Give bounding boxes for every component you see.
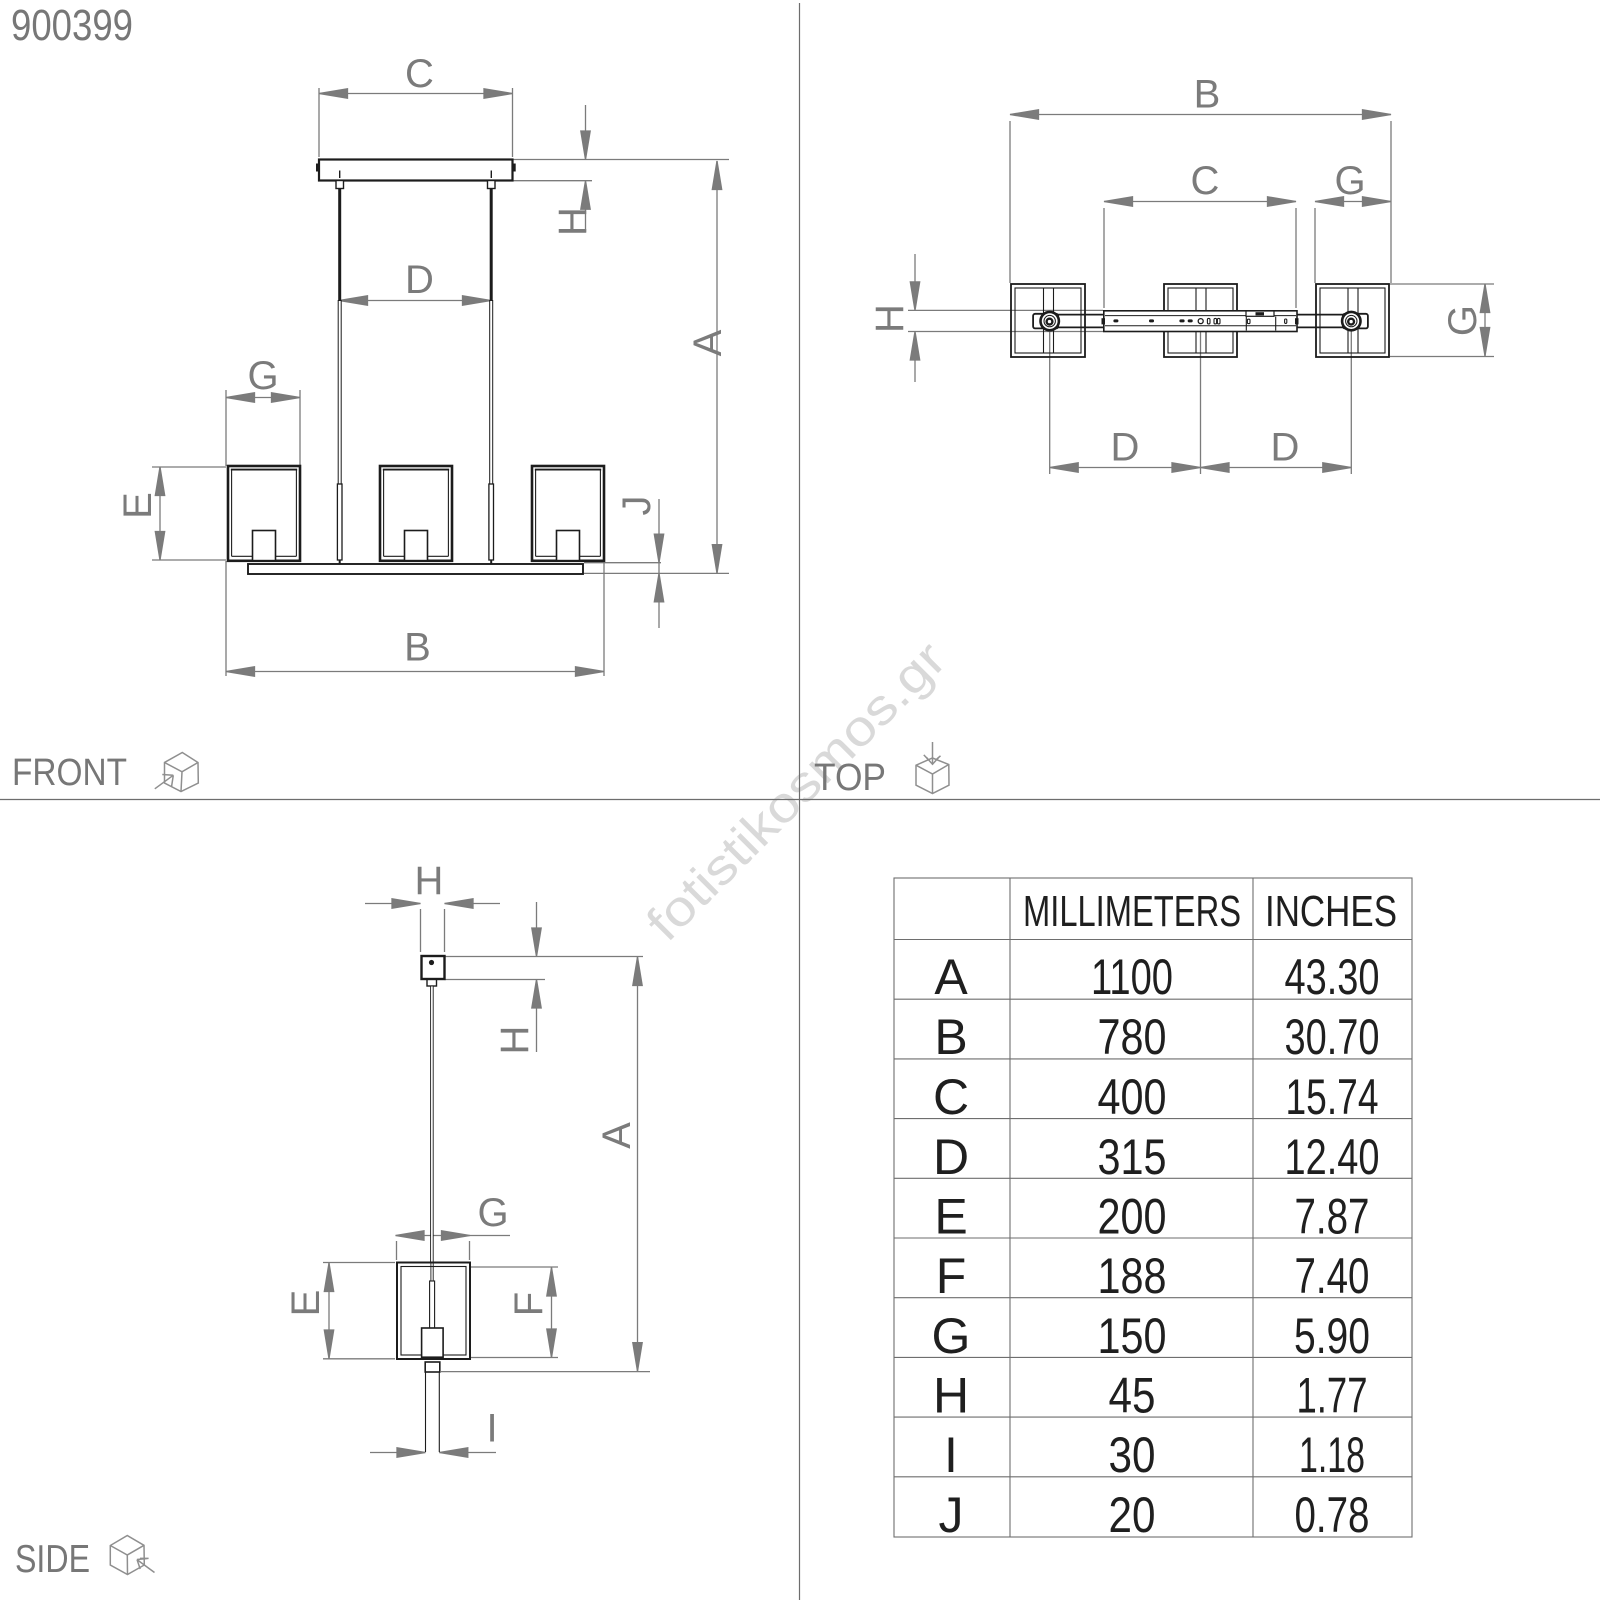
svg-text:SIDE: SIDE	[15, 1538, 90, 1581]
svg-text:H: H	[868, 304, 912, 333]
svg-text:H: H	[551, 207, 595, 236]
svg-text:315: 315	[1098, 1129, 1167, 1185]
svg-text:G: G	[247, 354, 278, 398]
svg-text:D: D	[405, 258, 434, 302]
svg-text:G: G	[1441, 305, 1485, 336]
svg-text:150: 150	[1098, 1308, 1167, 1364]
svg-text:A: A	[934, 949, 968, 1005]
svg-text:H: H	[933, 1368, 969, 1424]
svg-text:188: 188	[1098, 1248, 1167, 1304]
svg-text:D: D	[1271, 426, 1300, 470]
svg-text:5.90: 5.90	[1294, 1308, 1370, 1364]
svg-text:C: C	[1191, 159, 1220, 203]
svg-text:B: B	[404, 626, 431, 670]
svg-text:1.77: 1.77	[1297, 1368, 1368, 1424]
svg-text:400: 400	[1098, 1069, 1167, 1125]
svg-text:A: A	[686, 329, 730, 356]
svg-text:G: G	[1334, 159, 1365, 203]
svg-text:7.87: 7.87	[1295, 1189, 1370, 1245]
svg-text:780: 780	[1098, 1009, 1167, 1065]
svg-text:J: J	[615, 496, 659, 516]
svg-text:15.74: 15.74	[1286, 1069, 1379, 1125]
svg-text:FRONT: FRONT	[12, 752, 127, 794]
svg-text:G: G	[477, 1191, 508, 1235]
svg-text:E: E	[284, 1290, 328, 1317]
svg-text:43.30: 43.30	[1285, 949, 1380, 1005]
svg-text:TOP: TOP	[814, 757, 886, 799]
svg-text:7.40: 7.40	[1295, 1248, 1370, 1304]
svg-text:I: I	[486, 1407, 497, 1451]
svg-text:H: H	[415, 859, 444, 903]
svg-text:E: E	[934, 1189, 967, 1245]
svg-text:INCHES: INCHES	[1265, 887, 1397, 936]
svg-text:B: B	[934, 1009, 967, 1065]
svg-text:D: D	[933, 1129, 969, 1185]
svg-text:H: H	[493, 1026, 537, 1055]
svg-text:45: 45	[1109, 1368, 1156, 1424]
svg-text:C: C	[405, 52, 434, 96]
svg-text:900399: 900399	[11, 2, 133, 50]
svg-text:C: C	[933, 1069, 969, 1125]
svg-text:F: F	[936, 1248, 967, 1304]
svg-text:I: I	[944, 1427, 958, 1483]
svg-text:E: E	[116, 492, 160, 519]
svg-text:200: 200	[1098, 1189, 1167, 1245]
svg-text:G: G	[932, 1308, 971, 1364]
svg-text:20: 20	[1109, 1487, 1156, 1543]
svg-text:0.78: 0.78	[1295, 1487, 1370, 1543]
svg-text:J: J	[939, 1487, 964, 1543]
svg-text:B: B	[1194, 73, 1221, 117]
svg-text:A: A	[595, 1122, 639, 1149]
svg-text:1100: 1100	[1091, 949, 1173, 1005]
svg-text:30.70: 30.70	[1285, 1009, 1380, 1065]
svg-text:1.18: 1.18	[1299, 1427, 1365, 1483]
svg-text:D: D	[1111, 426, 1140, 470]
svg-text:12.40: 12.40	[1285, 1129, 1380, 1185]
svg-text:MILLIMETERS: MILLIMETERS	[1023, 887, 1241, 936]
svg-text:30: 30	[1109, 1427, 1156, 1483]
svg-text:F: F	[507, 1292, 551, 1316]
